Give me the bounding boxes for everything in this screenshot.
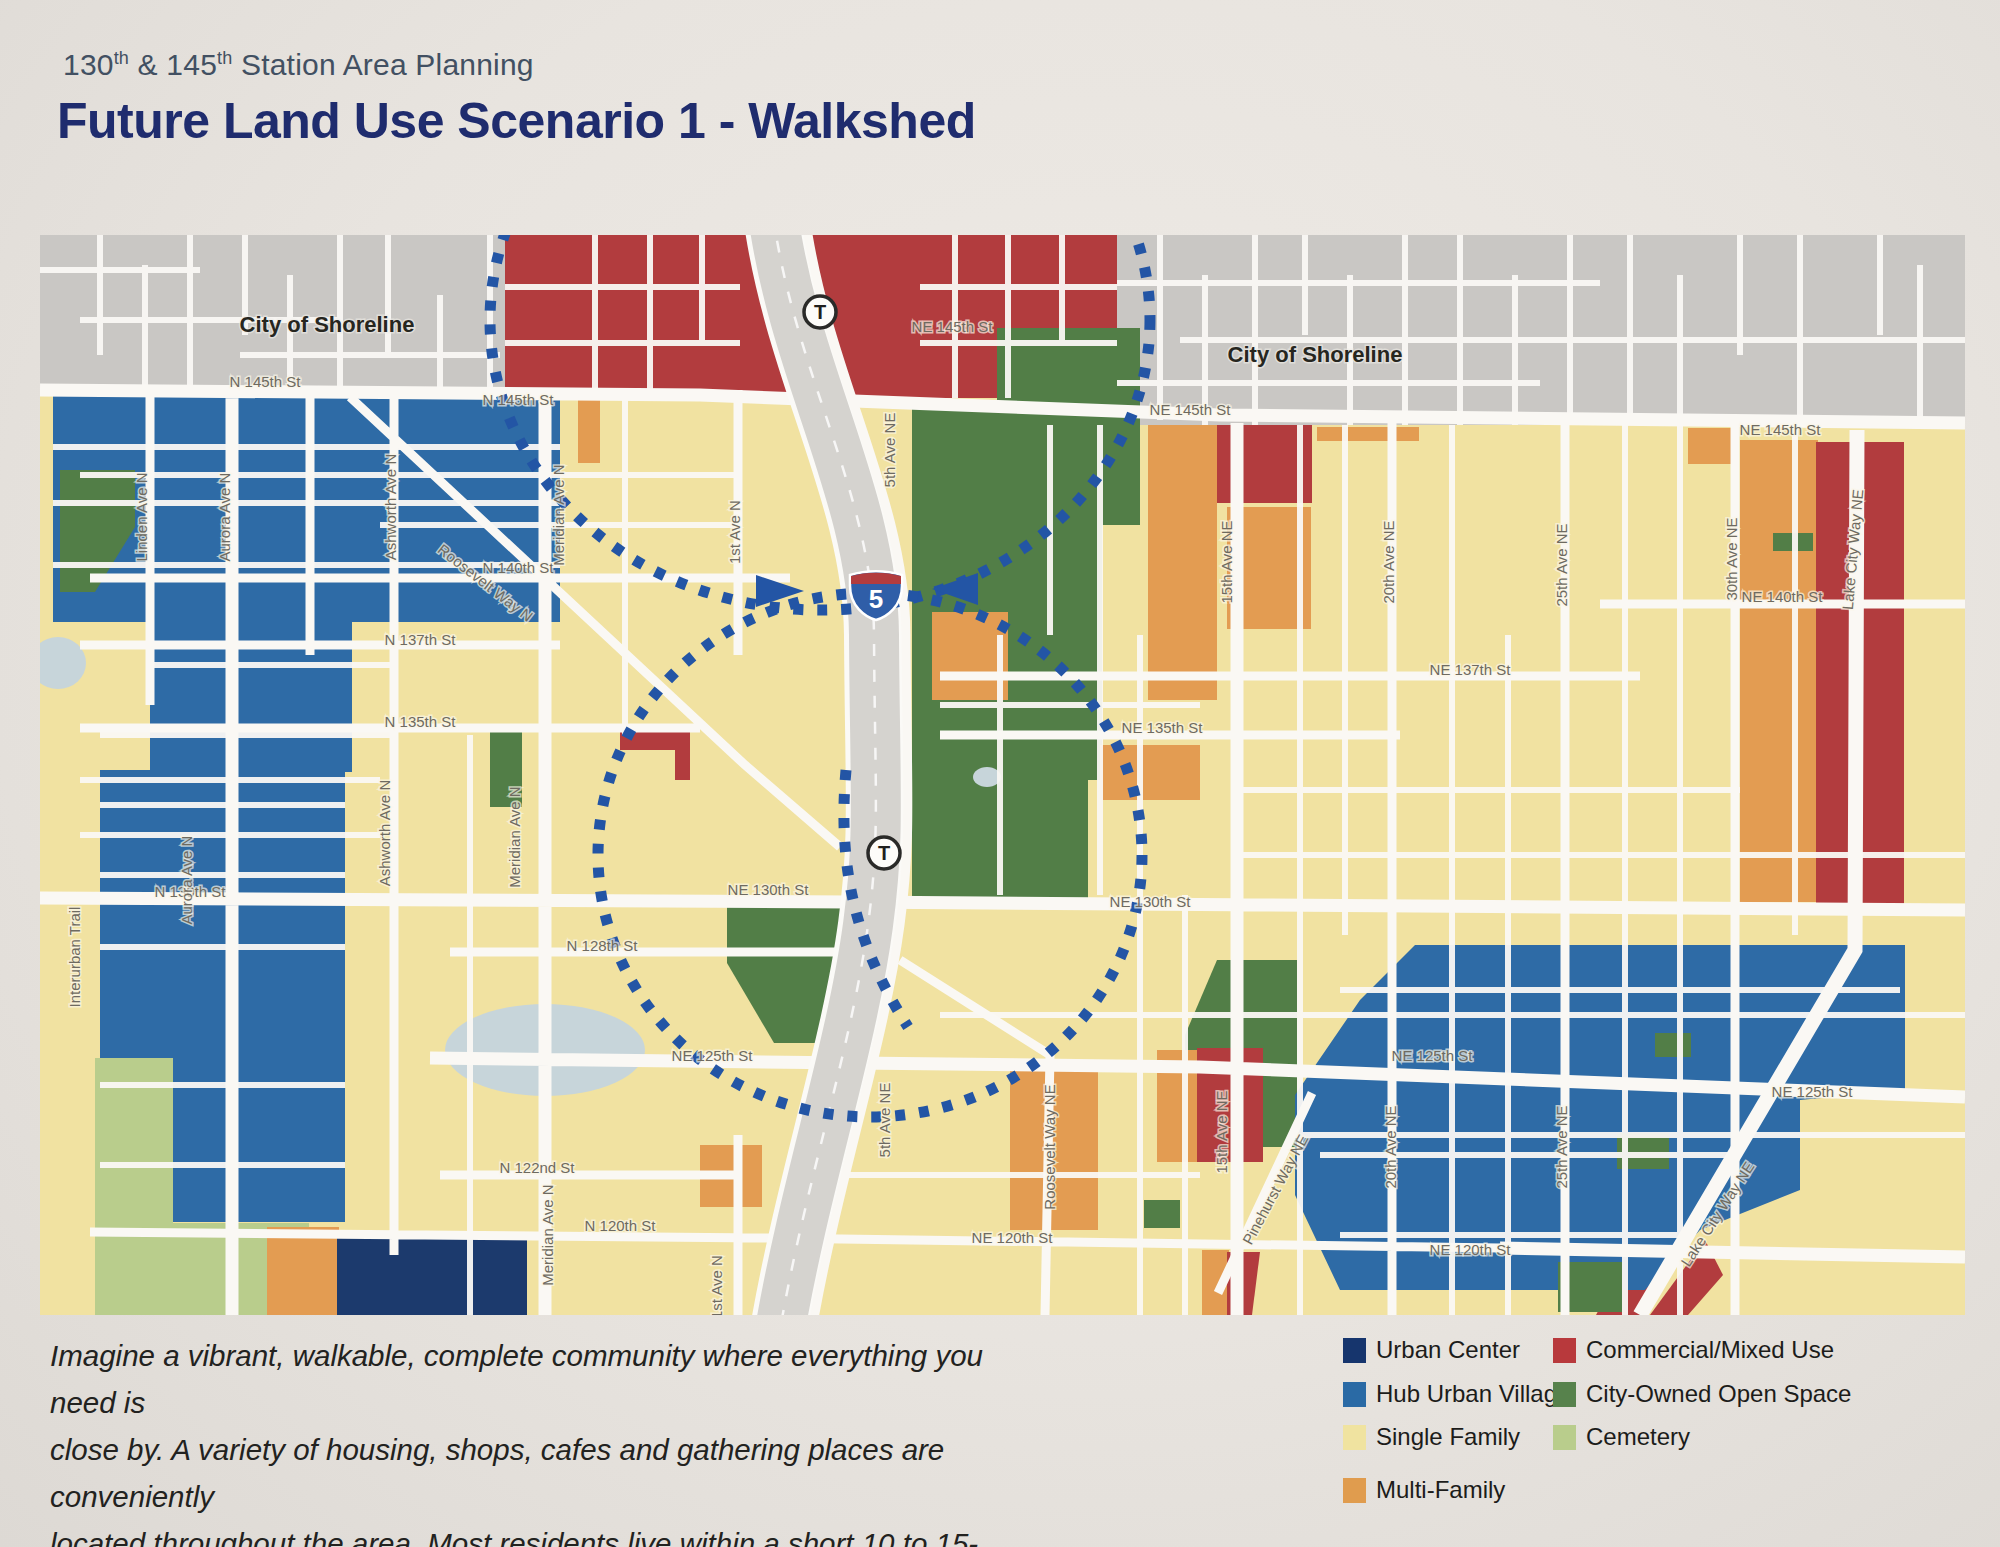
street-label: 1st Ave N — [726, 500, 743, 564]
street-label: 25th Ave NE — [1553, 523, 1570, 606]
street-label: 15th Ave NE — [1218, 520, 1235, 603]
street-label: N 137th St — [385, 631, 457, 648]
map-canvas: 5 T T N 145th StN 145th StNE 145th StNE … — [40, 235, 1965, 1315]
street-label: NE 145th St — [912, 318, 994, 335]
street-label: 20th Ave NE — [1380, 520, 1397, 603]
street-label: Linden Ave N — [133, 473, 150, 562]
street-label: NE 145th St — [1740, 421, 1822, 438]
land-use-map: 5 T T N 145th StN 145th StNE 145th StNE … — [40, 235, 1965, 1315]
city-label: City of Shoreline — [240, 312, 415, 337]
open-space-swatch-icon — [1553, 1382, 1576, 1407]
legend-label: City-Owned Open Space — [1586, 1380, 1851, 1408]
legend-label: Single Family — [1376, 1423, 1520, 1451]
svg-text:5: 5 — [869, 584, 883, 614]
street-label: NE 130th St — [1110, 893, 1192, 910]
street-label: Aurora Ave N — [216, 473, 233, 562]
city-label: City of Shoreline — [1228, 342, 1403, 367]
street-label: N 140th St — [483, 559, 555, 576]
street-label: N 145th St — [230, 373, 302, 390]
street-label: N 135th St — [385, 713, 457, 730]
superscript: th — [114, 48, 129, 68]
street-label: Ashworth Ave N — [376, 780, 393, 886]
station-145th: T — [804, 296, 836, 328]
description-line: Imagine a vibrant, walkable, complete co… — [50, 1332, 1050, 1426]
street-label: Meridian Ave N — [539, 1184, 556, 1285]
single-family-swatch-icon — [1343, 1425, 1366, 1450]
street-label: NE 137th St — [1430, 661, 1512, 678]
description-line: located throughout the area. Most reside… — [50, 1520, 1050, 1547]
legend-item-multi-family: Multi-Family — [1343, 1476, 1505, 1504]
street-label: Ashworth Ave N — [382, 454, 399, 560]
description-line: close by. A variety of housing, shops, c… — [50, 1426, 1050, 1520]
street-label: N 128th St — [567, 937, 639, 954]
legend-label: Commercial/Mixed Use — [1586, 1336, 1834, 1364]
pond — [973, 767, 1001, 787]
legend-label: Urban Center — [1376, 1336, 1520, 1364]
street-label: 30th Ave NE — [1723, 517, 1740, 600]
legend-item-urban-center: Urban Center — [1343, 1336, 1520, 1364]
svg-text:T: T — [814, 301, 826, 323]
street-label: NE 120th St — [1430, 1241, 1512, 1258]
street-label: NE 125th St — [1772, 1083, 1854, 1100]
urban-center-swatch-icon — [1343, 1338, 1366, 1363]
region-urban-center — [337, 1232, 527, 1315]
street-label: N 145th St — [483, 391, 555, 408]
street-label: 5th Ave NE — [876, 1083, 893, 1158]
street-label: NE 125th St — [1392, 1047, 1474, 1064]
street-label: N 122nd St — [499, 1159, 575, 1176]
street-label: NE 130th St — [728, 881, 810, 898]
street-label: NE 120th St — [972, 1229, 1054, 1246]
commercial-swatch-icon — [1553, 1338, 1576, 1363]
street-label: Aurora Ave N — [178, 836, 195, 925]
page-subtitle: 130th & 145th Station Area Planning — [63, 48, 534, 82]
multi-family-swatch-icon — [1343, 1478, 1366, 1503]
street-label: 20th Ave NE — [1382, 1105, 1399, 1188]
street-label: NE 135th St — [1122, 719, 1204, 736]
station-130th: T — [868, 837, 900, 869]
legend-label: Hub Urban Village — [1376, 1380, 1570, 1408]
street-label: Meridian Ave N — [550, 464, 567, 565]
street-label: 1st Ave N — [708, 1255, 725, 1315]
street-label: NE 125th St — [672, 1047, 754, 1064]
region-multifamily-bl — [267, 1227, 339, 1315]
street-label: NE 140th St — [1742, 588, 1824, 605]
legend-item-open-space: City-Owned Open Space — [1553, 1380, 1851, 1408]
street-label: NE 145th St — [1150, 401, 1232, 418]
superscript: th — [217, 48, 232, 68]
street-label: 25th Ave NE — [1553, 1105, 1570, 1188]
street-label: N 120th St — [585, 1217, 657, 1234]
legend-item-single-family: Single Family — [1343, 1423, 1520, 1451]
street-label: Meridian Ave N — [506, 786, 523, 887]
legend-item-commercial: Commercial/Mixed Use — [1553, 1336, 1834, 1364]
street-label: 5th Ave NE — [881, 413, 898, 488]
legend-item-cemetery: Cemetery — [1553, 1423, 1690, 1451]
description-text: Imagine a vibrant, walkable, complete co… — [50, 1332, 1050, 1547]
svg-text:T: T — [878, 842, 890, 864]
page-title: Future Land Use Scenario 1 - Walkshed — [57, 92, 976, 150]
legend-label: Cemetery — [1586, 1423, 1690, 1451]
legend-label: Multi-Family — [1376, 1476, 1505, 1504]
street-label: Roosevelt Way NE — [1041, 1084, 1058, 1209]
legend-item-hub-urban-village: Hub Urban Village — [1343, 1380, 1570, 1408]
cemetery-swatch-icon — [1553, 1425, 1576, 1450]
street-label: 15th Ave NE — [1213, 1090, 1230, 1173]
street-label: Interurban Trail — [66, 907, 83, 1008]
hub-urban-village-swatch-icon — [1343, 1382, 1366, 1407]
